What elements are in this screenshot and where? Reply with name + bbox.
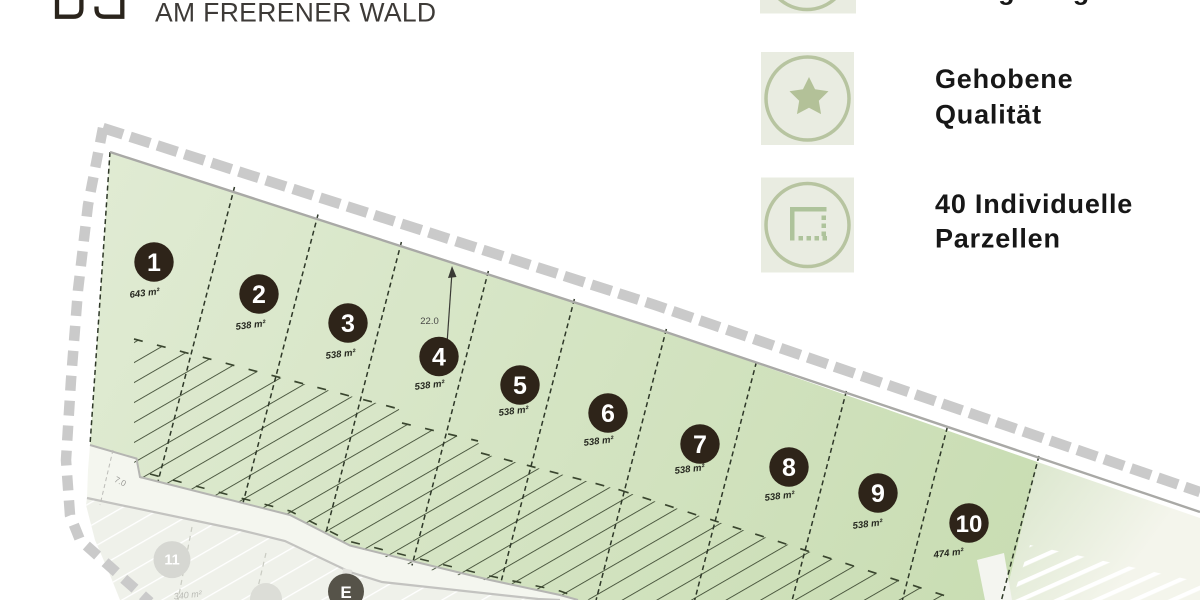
svg-text:8: 8 <box>782 454 796 482</box>
svg-text:1: 1 <box>147 249 161 277</box>
svg-text:Parzellen: Parzellen <box>935 224 1061 254</box>
svg-text:40 Individuelle: 40 Individuelle <box>935 189 1133 219</box>
svg-text:340 m²: 340 m² <box>173 588 203 600</box>
svg-text:Ruhige Lage: Ruhige Lage <box>935 0 1106 6</box>
svg-text:9: 9 <box>871 480 885 508</box>
svg-text:4: 4 <box>432 344 446 372</box>
svg-text:6: 6 <box>601 400 615 428</box>
svg-text:2: 2 <box>252 281 266 309</box>
svg-text:3: 3 <box>341 310 355 338</box>
svg-text:11: 11 <box>164 553 179 569</box>
svg-text:10: 10 <box>956 511 983 538</box>
svg-text:7: 7 <box>693 431 707 459</box>
svg-text:Gehobene: Gehobene <box>935 64 1073 94</box>
svg-text:AM FRERENER WALD: AM FRERENER WALD <box>155 0 436 28</box>
svg-text:E: E <box>340 583 351 600</box>
svg-text:5: 5 <box>513 372 527 400</box>
svg-text:Qualität: Qualität <box>935 100 1042 130</box>
svg-text:22.0: 22.0 <box>420 316 439 327</box>
